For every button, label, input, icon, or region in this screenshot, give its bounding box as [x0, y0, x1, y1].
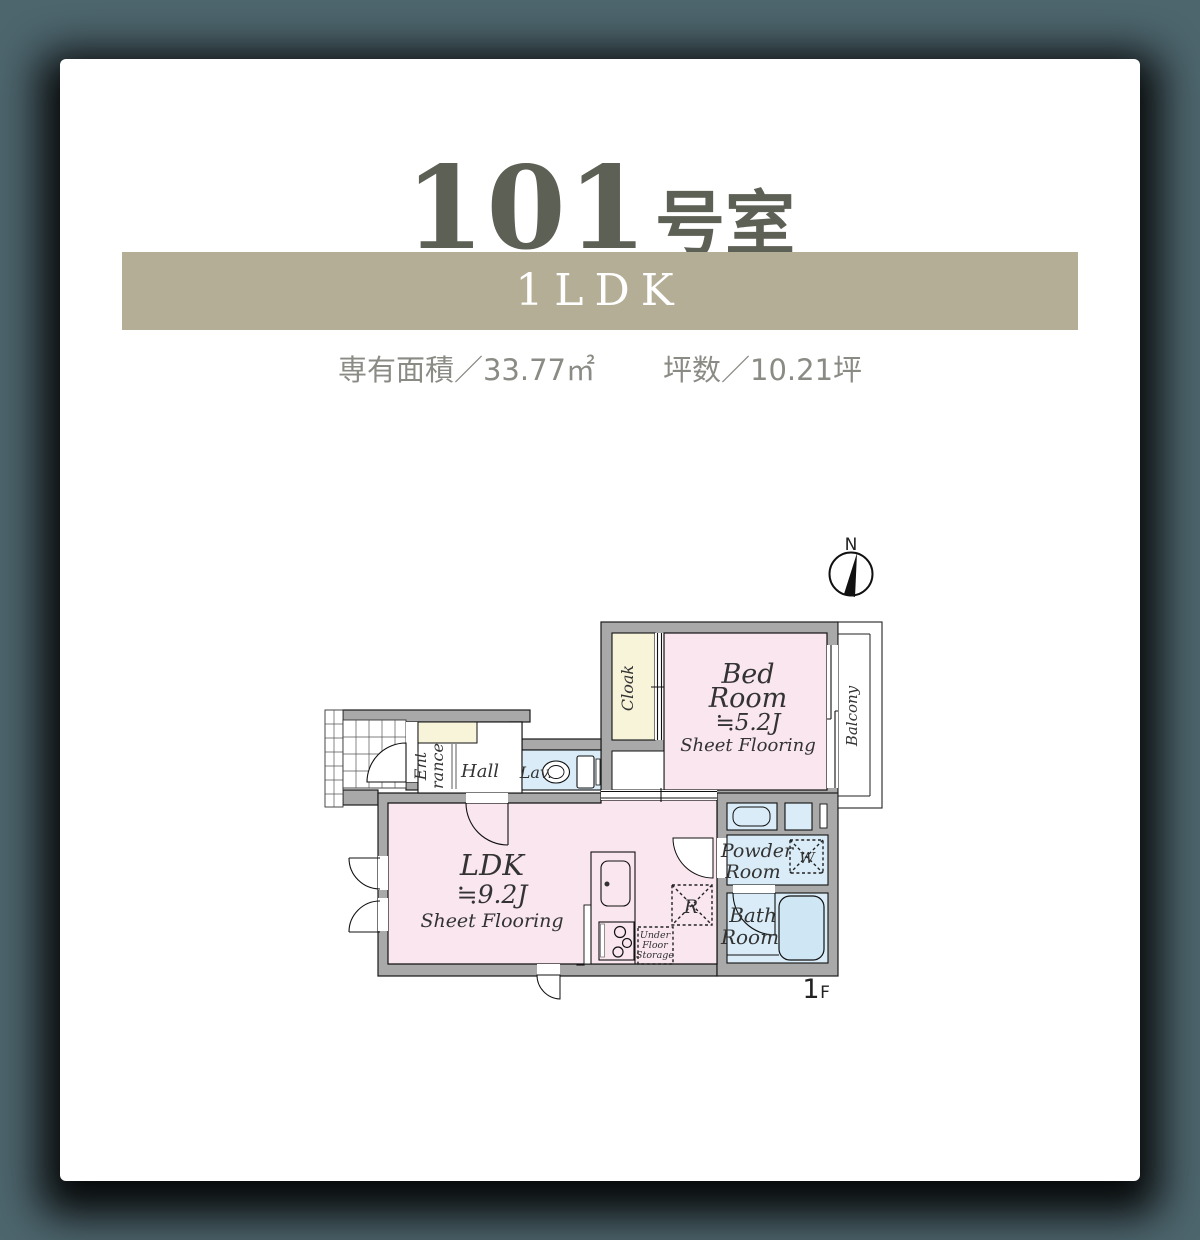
compass-north-label: N [845, 535, 858, 555]
washer-label: W [799, 849, 816, 867]
bath-label-line1: Bath [728, 903, 777, 927]
floor-suffix: F [820, 983, 830, 1003]
ufs-line3: Storage [636, 950, 674, 961]
floor-plan: Balcony Ent rance Hall [320, 520, 890, 1030]
hall-label: Hall [460, 761, 499, 782]
washbasin-icon [733, 807, 770, 826]
lav-label: Lav. [519, 763, 552, 782]
shoe-cabinet [418, 722, 477, 743]
kitchen-back-door [537, 964, 560, 999]
bath-label-line2: Room [720, 925, 779, 949]
tsubo-spec: 坪数／10.21坪 [663, 353, 862, 387]
entrance-label-line2: rance [428, 743, 447, 789]
ldk-label: LDK [459, 848, 527, 882]
bedroom-flooring: Sheet Flooring [680, 735, 816, 756]
bath-room: Bath Room [720, 885, 828, 963]
corridor-nook [612, 751, 664, 790]
bedroom-sliding-partition [601, 788, 717, 802]
ldk-size: ≒9.2J [457, 880, 530, 909]
cloak-label: Cloak [618, 665, 637, 711]
lavatory: Lav. [519, 750, 601, 790]
page-title: 101号室 [60, 151, 1140, 265]
balcony: Balcony [838, 622, 882, 808]
stove-icon [599, 922, 634, 960]
bedroom: Bed Room ≒5.2J Sheet Flooring [664, 633, 827, 790]
specs-row: 専有面積／33.77㎡坪数／10.21坪 [60, 349, 1140, 391]
powder-room: Powder Room W [720, 835, 828, 885]
layout-type-label: 1LDK [515, 252, 684, 330]
refrigerator-label: R [683, 896, 698, 918]
page-background: 101号室 1LDK 専有面積／33.77㎡坪数／10.21坪 [0, 0, 1200, 1240]
floor-label: 1 F [802, 974, 829, 1005]
kitchen-unit [584, 852, 635, 964]
compass-icon: N [830, 535, 873, 597]
balcony-window [827, 645, 838, 788]
balcony-label: Balcony [843, 685, 861, 747]
faucet-icon [605, 882, 610, 887]
entrance-hall: Ent rance Hall [411, 722, 522, 793]
floorplan-card: 101号室 1LDK 専有面積／33.77㎡坪数／10.21坪 [60, 59, 1140, 1181]
cloak: Cloak [612, 633, 666, 740]
bedroom-size: ≒5.2J [715, 710, 782, 736]
washstand [727, 803, 827, 830]
floor-number: 1 [802, 974, 819, 1005]
layout-type-banner: 1LDK [122, 252, 1078, 330]
bathtub-icon [779, 896, 824, 960]
ldk-flooring: Sheet Flooring [420, 910, 563, 932]
powder-label-line2: Room [724, 861, 780, 883]
area-spec: 専有面積／33.77㎡ [338, 353, 595, 387]
powder-label-line1: Powder [720, 840, 795, 862]
